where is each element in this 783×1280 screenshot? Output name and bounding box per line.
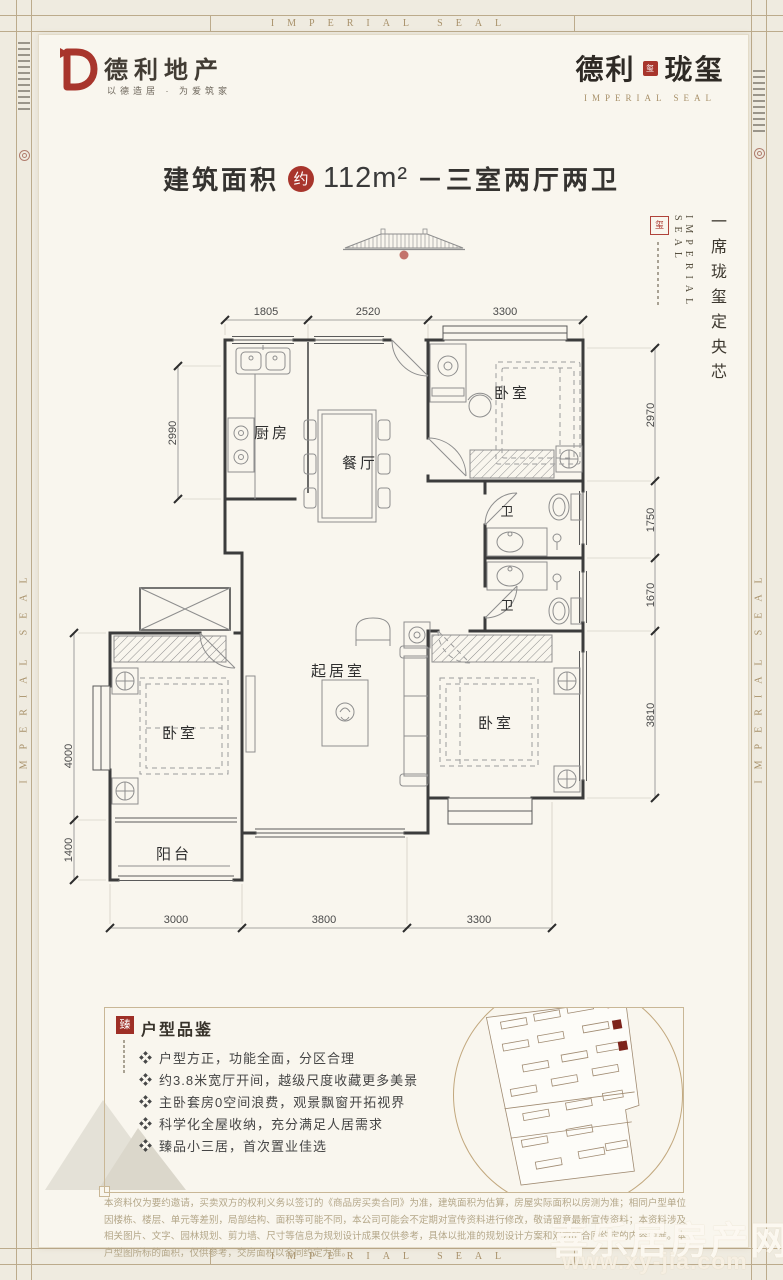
dim-left-kitchen: 2990 xyxy=(167,421,179,445)
diamond-bullet-icon xyxy=(139,1095,152,1108)
dim-top-2: 2520 xyxy=(356,306,380,318)
project-name-left: 德利 xyxy=(575,48,635,88)
room-bedroom-left: 卧室 xyxy=(162,725,198,742)
room-bath-2: 卫 xyxy=(500,598,513,613)
feature-item: 臻品小三居，首次置业佳选 xyxy=(141,1134,418,1156)
approx-badge: 约 xyxy=(288,166,314,192)
watermark-site-url: www.xy-jia.com xyxy=(562,1248,748,1275)
side-en-word1: IMPERIAL xyxy=(683,215,694,355)
site-plan-circle xyxy=(453,1007,683,1193)
developer-name: 德利地产 xyxy=(104,50,224,85)
frame-band-left-label: IMPERIAL SEAL xyxy=(19,566,30,783)
headline-suffix: －三室两厅两卫 xyxy=(417,160,620,197)
project-name-en: IMPERIAL SEAL xyxy=(552,93,748,103)
feature-text: 户型方正，功能全面，分区合理 xyxy=(159,1048,355,1067)
project-seal-icon: 玺 xyxy=(643,61,658,76)
diamond-bullet-icon xyxy=(139,1117,152,1130)
dim-left-balcony: 1400 xyxy=(63,838,75,862)
room-balcony: 阳台 xyxy=(156,846,192,863)
features-micro-caption xyxy=(123,1040,125,1074)
dim-top-1: 1805 xyxy=(254,306,278,318)
room-bedroom-top: 卧室 xyxy=(494,385,530,402)
dim-right-3: 1670 xyxy=(645,583,657,607)
frame-stripe-left xyxy=(18,42,30,112)
dim-top-3: 3300 xyxy=(493,306,517,318)
dim-right-4: 3810 xyxy=(645,703,657,727)
features-seal-icon: 臻 xyxy=(116,1016,134,1034)
feature-item: 科学化全屋收纳，充分满足人居需求 xyxy=(141,1112,418,1134)
project-name-right: 珑玺 xyxy=(665,48,725,88)
diamond-bullet-icon xyxy=(139,1051,152,1064)
frame-stripe-right xyxy=(753,70,765,136)
developer-tagline: 以德造居 · 为爱筑家 xyxy=(107,84,231,97)
room-living: 起居室 xyxy=(311,663,365,680)
features-panel: 臻 户型品鉴 户型方正，功能全面，分区合理 约3.8米宽厅开间，越级尺度收藏更多… xyxy=(104,1007,684,1193)
roof-ornament-icon xyxy=(343,226,465,262)
room-bath-1: 卫 xyxy=(500,504,513,519)
features-list: 户型方正，功能全面，分区合理 约3.8米宽厅开间，越级尺度收藏更多美景 主卧套房… xyxy=(141,1046,418,1156)
diamond-bullet-icon xyxy=(139,1073,152,1086)
frame-band-top-label: IMPERIAL SEAL xyxy=(210,16,575,31)
site-plan-map xyxy=(476,1007,666,1189)
dim-left-bedroom: 4000 xyxy=(63,744,75,768)
feature-item: 主卧套房0空间浪费，观景飘窗开拓视界 xyxy=(141,1090,418,1112)
poster-page: IMPERIAL SEAL IMPERIAL SEAL IMPERIAL SEA… xyxy=(0,0,783,1280)
room-bedroom-right: 卧室 xyxy=(478,715,514,732)
feature-item: 户型方正，功能全面，分区合理 xyxy=(141,1046,418,1068)
diamond-bullet-icon xyxy=(139,1139,152,1152)
floor-plan: 1805 2520 3300 3000 3800 3300 2990 4000 … xyxy=(60,288,680,978)
headline-prefix: 建筑面积 xyxy=(163,160,279,197)
dim-right-2: 1750 xyxy=(645,508,657,532)
room-kitchen: 厨房 xyxy=(254,425,290,442)
room-dining: 餐厅 xyxy=(342,455,378,472)
feature-text: 约3.8米宽厅开间，越级尺度收藏更多美景 xyxy=(159,1070,418,1089)
side-seal-icon: 玺 xyxy=(650,216,669,235)
frame-band-right-label: IMPERIAL SEAL xyxy=(754,566,765,783)
dim-bottom-3: 3300 xyxy=(467,914,491,926)
developer-logo-icon xyxy=(56,46,98,94)
feature-item: 约3.8米宽厅开间，越级尺度收藏更多美景 xyxy=(141,1068,418,1090)
side-slogan: 一席珑玺定央芯 xyxy=(705,213,729,393)
dim-right-1: 2970 xyxy=(645,403,657,427)
project-brand: 德利 玺 珑玺 IMPERIAL SEAL xyxy=(552,48,748,103)
features-heading: 户型品鉴 xyxy=(141,1016,213,1040)
frame-seal-right-icon xyxy=(754,148,765,159)
frame-band-top: IMPERIAL SEAL xyxy=(0,15,783,32)
headline-area: 112m² xyxy=(323,162,408,195)
dim-bottom-1: 3000 xyxy=(164,914,188,926)
feature-text: 科学化全屋收纳，充分满足人居需求 xyxy=(159,1114,383,1133)
headline: 建筑面积 约 112m² －三室两厅两卫 xyxy=(0,160,783,197)
feature-text: 臻品小三居，首次置业佳选 xyxy=(159,1136,327,1155)
feature-text: 主卧套房0空间浪费，观景飘窗开拓视界 xyxy=(159,1092,405,1111)
beds-dashed xyxy=(140,362,580,774)
dim-bottom-2: 3800 xyxy=(312,914,336,926)
